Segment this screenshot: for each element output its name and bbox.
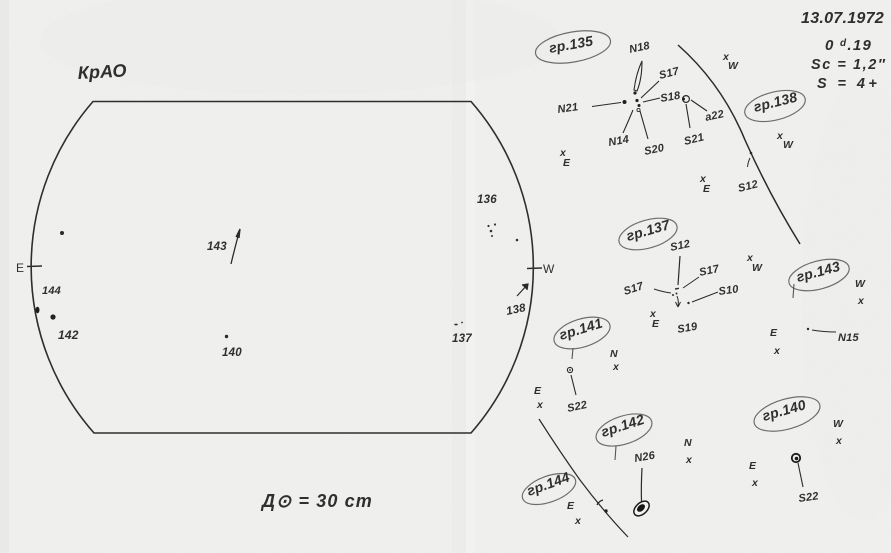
svg-text:КрАО: КрАО [77, 60, 127, 83]
svg-text:W: W [833, 418, 844, 430]
svg-text:E: E [749, 460, 757, 472]
svg-text:W: W [752, 262, 763, 274]
svg-text:N: N [610, 348, 618, 360]
svg-text:W: W [543, 262, 555, 276]
svg-text:x: x [612, 361, 620, 373]
svg-text:0 d.19: 0 d.19 [825, 37, 871, 54]
svg-text:W: W [783, 139, 794, 151]
svg-text:136: 136 [477, 194, 497, 206]
svg-text:137: 137 [452, 333, 472, 345]
svg-text:x: x [835, 435, 843, 447]
svg-text:E: E [703, 183, 711, 195]
svg-text:x: x [773, 345, 781, 357]
svg-text:E: E [567, 500, 575, 512]
svg-text:E: E [770, 327, 778, 339]
svg-text:N15: N15 [838, 332, 859, 344]
svg-text:x: x [751, 477, 759, 489]
svg-text:W: W [728, 60, 739, 72]
svg-text:E: E [563, 157, 571, 169]
svg-text:144: 144 [42, 285, 61, 297]
svg-text:Sc = 1,2″: Sc = 1,2″ [811, 57, 886, 73]
svg-text:W: W [855, 278, 866, 290]
svg-text:142: 142 [58, 328, 79, 342]
svg-text:x: x [574, 515, 582, 527]
svg-text:x: x [536, 399, 544, 411]
svg-text:N: N [684, 437, 692, 449]
svg-text:Д⊙ = 30 cm: Д⊙ = 30 cm [260, 491, 372, 511]
svg-text:140: 140 [222, 347, 242, 359]
svg-text:x: x [857, 295, 865, 307]
svg-text:13.07.1972: 13.07.1972 [801, 10, 884, 27]
svg-text:x: x [685, 454, 693, 466]
svg-text:E: E [534, 385, 542, 397]
svg-text:143: 143 [207, 241, 227, 253]
svg-text:E: E [16, 261, 24, 275]
svg-text:E: E [652, 318, 660, 330]
